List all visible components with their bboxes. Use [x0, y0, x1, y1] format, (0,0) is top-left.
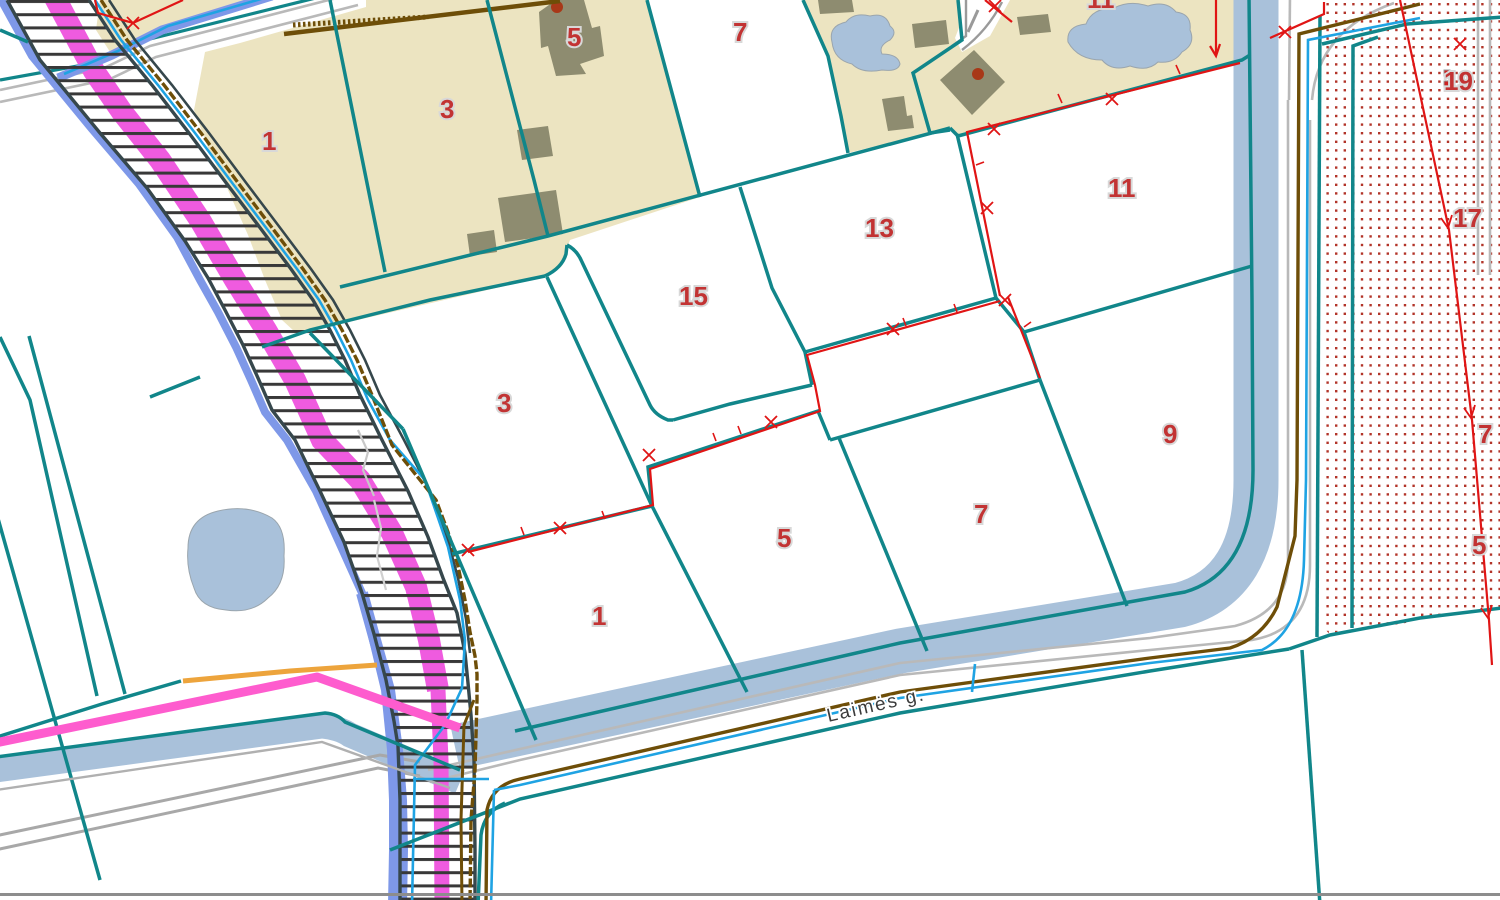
- svg-text:17: 17: [1453, 203, 1482, 233]
- svg-text:7: 7: [974, 499, 988, 529]
- svg-text:5: 5: [1472, 530, 1486, 560]
- svg-text:3: 3: [440, 94, 454, 124]
- svg-text:9: 9: [1163, 419, 1177, 449]
- svg-text:7: 7: [733, 17, 747, 47]
- svg-text:19: 19: [1444, 66, 1473, 96]
- svg-text:3: 3: [497, 388, 511, 418]
- svg-text:1: 1: [262, 126, 276, 156]
- svg-text:15: 15: [679, 281, 708, 311]
- svg-text:1: 1: [592, 601, 606, 631]
- svg-text:11: 11: [1087, 0, 1115, 14]
- svg-text:13: 13: [865, 213, 894, 243]
- svg-text:5: 5: [777, 523, 791, 553]
- svg-text:7: 7: [1478, 419, 1492, 449]
- svg-text:5: 5: [567, 22, 581, 52]
- svg-text:11: 11: [1108, 173, 1136, 203]
